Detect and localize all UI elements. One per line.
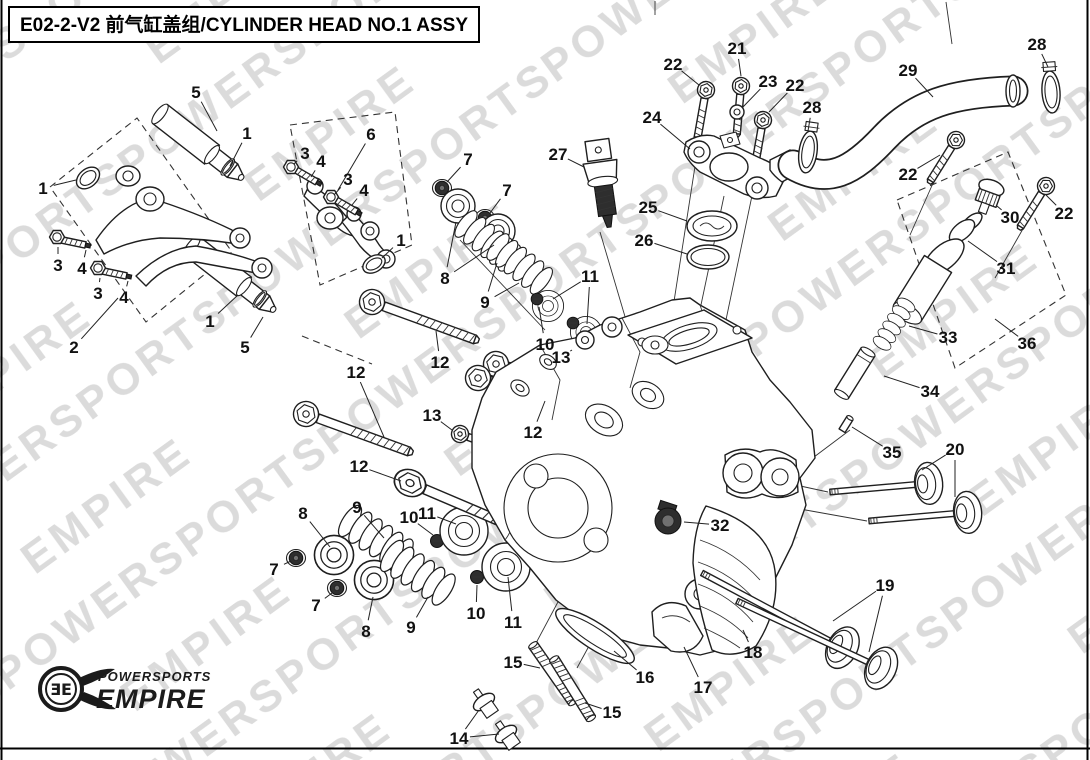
callout-leader [99, 278, 100, 282]
callout-5: 5 [240, 338, 249, 357]
callout-3: 3 [93, 284, 102, 303]
callout-28: 28 [1028, 35, 1047, 54]
spark-plug [655, 500, 681, 534]
callout-8: 8 [361, 622, 370, 641]
callout-9: 9 [480, 293, 489, 312]
valve-keeper [471, 571, 484, 584]
callout-20: 20 [946, 440, 965, 459]
callout-14: 14 [450, 729, 469, 748]
valve-keeper [531, 293, 543, 305]
callout-11: 11 [504, 613, 522, 632]
callout-9: 9 [352, 498, 361, 517]
callout-7: 7 [269, 560, 278, 579]
callout-4: 4 [316, 152, 326, 171]
logo-emblem-glyph: ƎE [50, 680, 72, 699]
callout-13: 13 [552, 348, 571, 367]
callout-16: 16 [636, 668, 655, 687]
washer-23 [730, 105, 744, 119]
callout-22: 22 [664, 55, 683, 74]
logo-brand-bottom: EMPIRE [96, 684, 206, 714]
title-box: E02-2-V2 前气缸盖组/CYLINDER HEAD NO.1 ASSY [8, 6, 480, 43]
callout-22: 22 [899, 165, 918, 184]
callout-4: 4 [119, 288, 129, 307]
page-title: E02-2-V2 前气缸盖组/CYLINDER HEAD NO.1 ASSY [20, 15, 468, 36]
callout-27: 27 [549, 145, 568, 164]
callout-35: 35 [883, 443, 902, 462]
callout-21: 21 [728, 39, 747, 58]
callout-10: 10 [467, 604, 486, 623]
callout-18: 18 [744, 643, 763, 662]
callout-13: 13 [423, 406, 442, 425]
callout-9: 9 [406, 618, 415, 637]
lock-nut [50, 231, 65, 244]
spring-seat [314, 535, 353, 574]
callout-15: 15 [504, 653, 523, 672]
callout-7: 7 [311, 596, 320, 615]
callout-11: 11 [418, 504, 436, 523]
brand-logo-graphic: ƎE POWERSPORTS EMPIRE [36, 658, 276, 720]
parts-diagram-page: POWERSPORTS EMPIRE [0, 0, 1090, 760]
callout-3: 3 [53, 256, 62, 275]
callout-leader [476, 585, 477, 602]
callout-22: 22 [786, 76, 805, 95]
callout-5: 5 [191, 83, 200, 102]
callout-10: 10 [400, 508, 419, 527]
callout-12: 12 [524, 423, 543, 442]
o-ring-26 [687, 245, 729, 269]
callout-15: 15 [603, 703, 622, 722]
valve-keeper [567, 317, 579, 329]
callout-17: 17 [694, 678, 713, 697]
callout-3: 3 [300, 144, 309, 163]
callout-28: 28 [803, 98, 822, 117]
callout-24: 24 [643, 108, 662, 127]
exploded-parts-diagram: POWERSPORTS EMPIRE [0, 0, 1090, 760]
callout-3: 3 [343, 170, 352, 189]
thermostat [687, 211, 737, 241]
callout-30: 30 [1001, 208, 1020, 227]
callout-25: 25 [639, 198, 658, 217]
callout-2: 2 [69, 338, 78, 357]
callout-34: 34 [921, 382, 940, 401]
callout-19: 19 [876, 576, 895, 595]
callout-1: 1 [38, 179, 47, 198]
callout-4: 4 [77, 259, 87, 278]
callout-31: 31 [997, 259, 1016, 278]
callout-12: 12 [347, 363, 366, 382]
callout-23: 23 [759, 72, 778, 91]
brand-logo: ƎE POWERSPORTS EMPIRE [36, 658, 276, 725]
lock-nut [91, 262, 106, 275]
callout-8: 8 [298, 504, 307, 523]
callout-11: 11 [581, 267, 599, 286]
callout-26: 26 [635, 231, 654, 250]
callout-4: 4 [359, 181, 369, 200]
valve-stem-seal [287, 550, 306, 567]
callout-7: 7 [463, 150, 472, 169]
callout-6: 6 [366, 125, 375, 144]
callout-1: 1 [242, 124, 251, 143]
callout-1: 1 [396, 231, 405, 250]
callout-29: 29 [899, 61, 918, 80]
callout-12: 12 [431, 353, 450, 372]
callout-1: 1 [205, 312, 214, 331]
callout-36: 36 [1018, 334, 1037, 353]
callout-7: 7 [502, 181, 511, 200]
callout-12: 12 [350, 457, 369, 476]
callout-8: 8 [440, 269, 449, 288]
logo-brand-top: POWERSPORTS [98, 669, 211, 684]
callout-22: 22 [1055, 204, 1074, 223]
callout-32: 32 [711, 516, 730, 535]
callout-33: 33 [939, 328, 958, 347]
